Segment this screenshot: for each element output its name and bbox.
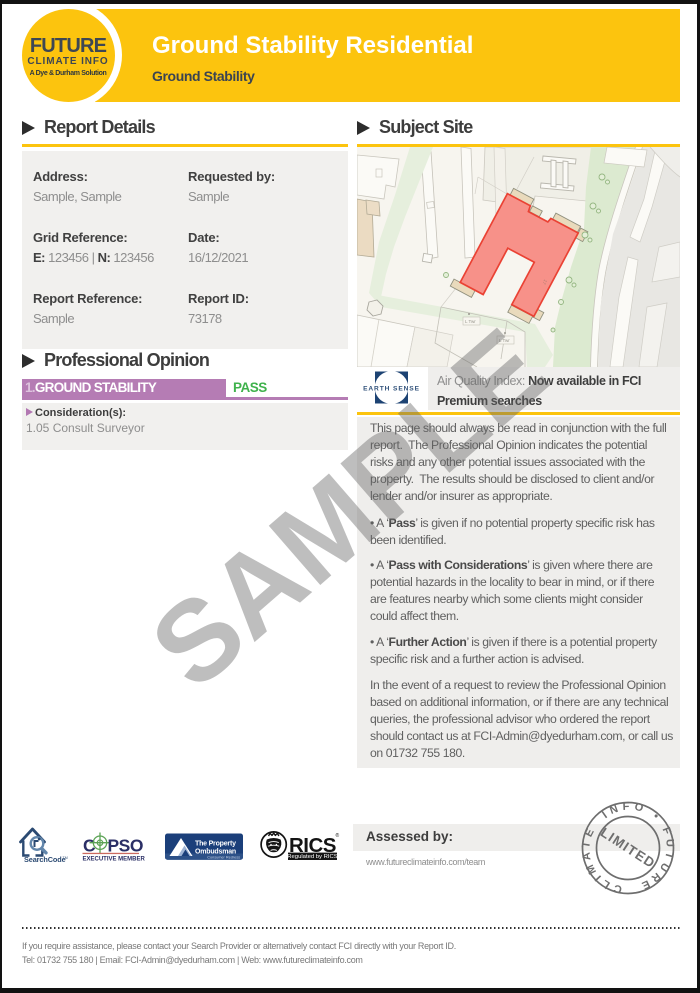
- svg-text:LIMITED: LIMITED: [598, 824, 659, 871]
- svg-text:TM: TM: [63, 856, 68, 860]
- svg-text:®: ®: [336, 832, 340, 839]
- svg-text:L Twr: L Twr: [465, 319, 476, 324]
- svg-text:Ombudsman: Ombudsman: [195, 848, 236, 855]
- svg-text:EARTH SENSE: EARTH SENSE: [363, 385, 420, 392]
- svg-text:L Twr: L Twr: [499, 338, 510, 343]
- svg-text:SearchCode: SearchCode: [24, 855, 66, 864]
- svg-text:EXECUTIVE MEMBER: EXECUTIVE MEMBER: [83, 857, 146, 863]
- svg-text:Consumer Redress: Consumer Redress: [207, 855, 240, 859]
- svg-text:The Property: The Property: [195, 840, 236, 847]
- svg-text:Regulated by RICS: Regulated by RICS: [287, 854, 337, 860]
- svg-text:PSO: PSO: [108, 836, 143, 856]
